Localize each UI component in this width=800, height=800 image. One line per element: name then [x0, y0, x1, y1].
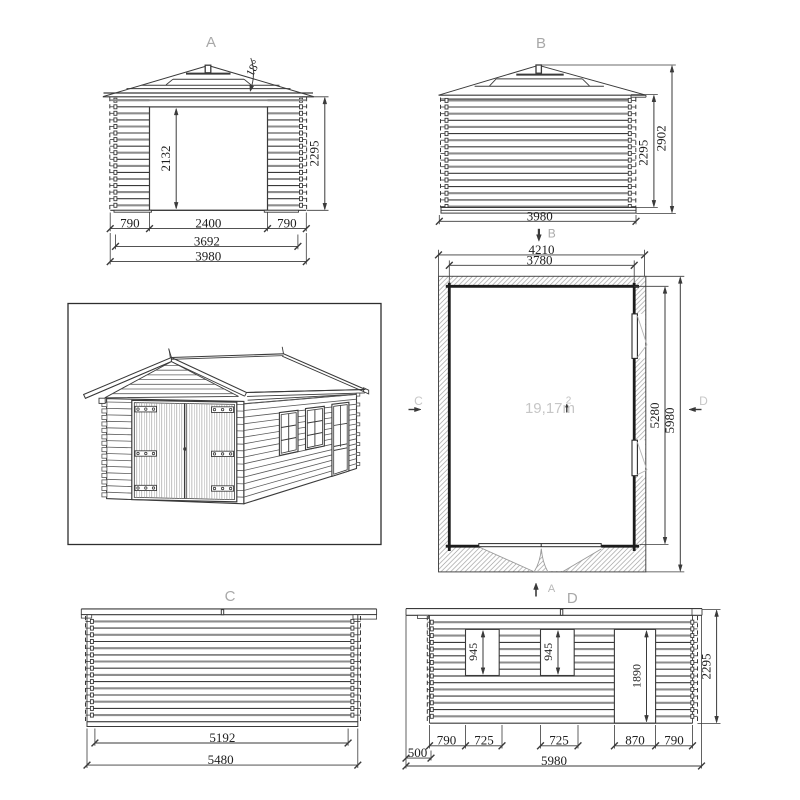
svg-text:2295: 2295 [636, 140, 651, 166]
svg-text:3780: 3780 [527, 252, 553, 267]
svg-text:5192: 5192 [209, 730, 235, 745]
svg-text:2902: 2902 [654, 125, 669, 151]
svg-text:790: 790 [664, 733, 684, 748]
svg-text:C: C [414, 394, 423, 408]
svg-text:790: 790 [120, 216, 140, 231]
svg-text:A: A [548, 583, 556, 595]
svg-text:945: 945 [466, 643, 480, 661]
svg-text:5980: 5980 [662, 408, 677, 434]
svg-text:3980: 3980 [195, 249, 221, 264]
svg-text:B: B [536, 35, 546, 52]
svg-text:5980: 5980 [541, 753, 567, 768]
svg-text:C: C [225, 588, 236, 605]
svg-text:5480: 5480 [208, 752, 234, 767]
svg-text:5280: 5280 [647, 403, 662, 429]
svg-text:870: 870 [625, 733, 645, 748]
svg-text:500: 500 [408, 745, 428, 760]
svg-text:2295: 2295 [699, 654, 714, 680]
svg-text:B: B [548, 226, 556, 240]
svg-text:A: A [206, 34, 216, 51]
svg-text:2400: 2400 [195, 216, 221, 231]
svg-text:D: D [699, 394, 708, 408]
svg-text:790: 790 [437, 733, 457, 748]
svg-text:3980: 3980 [527, 208, 553, 223]
svg-text:945: 945 [541, 643, 555, 661]
svg-text:3692: 3692 [194, 233, 220, 248]
svg-text:D: D [567, 590, 578, 607]
svg-text:2295: 2295 [306, 141, 321, 167]
svg-text:725: 725 [474, 733, 494, 748]
svg-text:1890: 1890 [629, 664, 643, 688]
svg-text:725: 725 [549, 733, 569, 748]
svg-text:2132: 2132 [158, 146, 173, 172]
svg-text:790: 790 [277, 216, 297, 231]
